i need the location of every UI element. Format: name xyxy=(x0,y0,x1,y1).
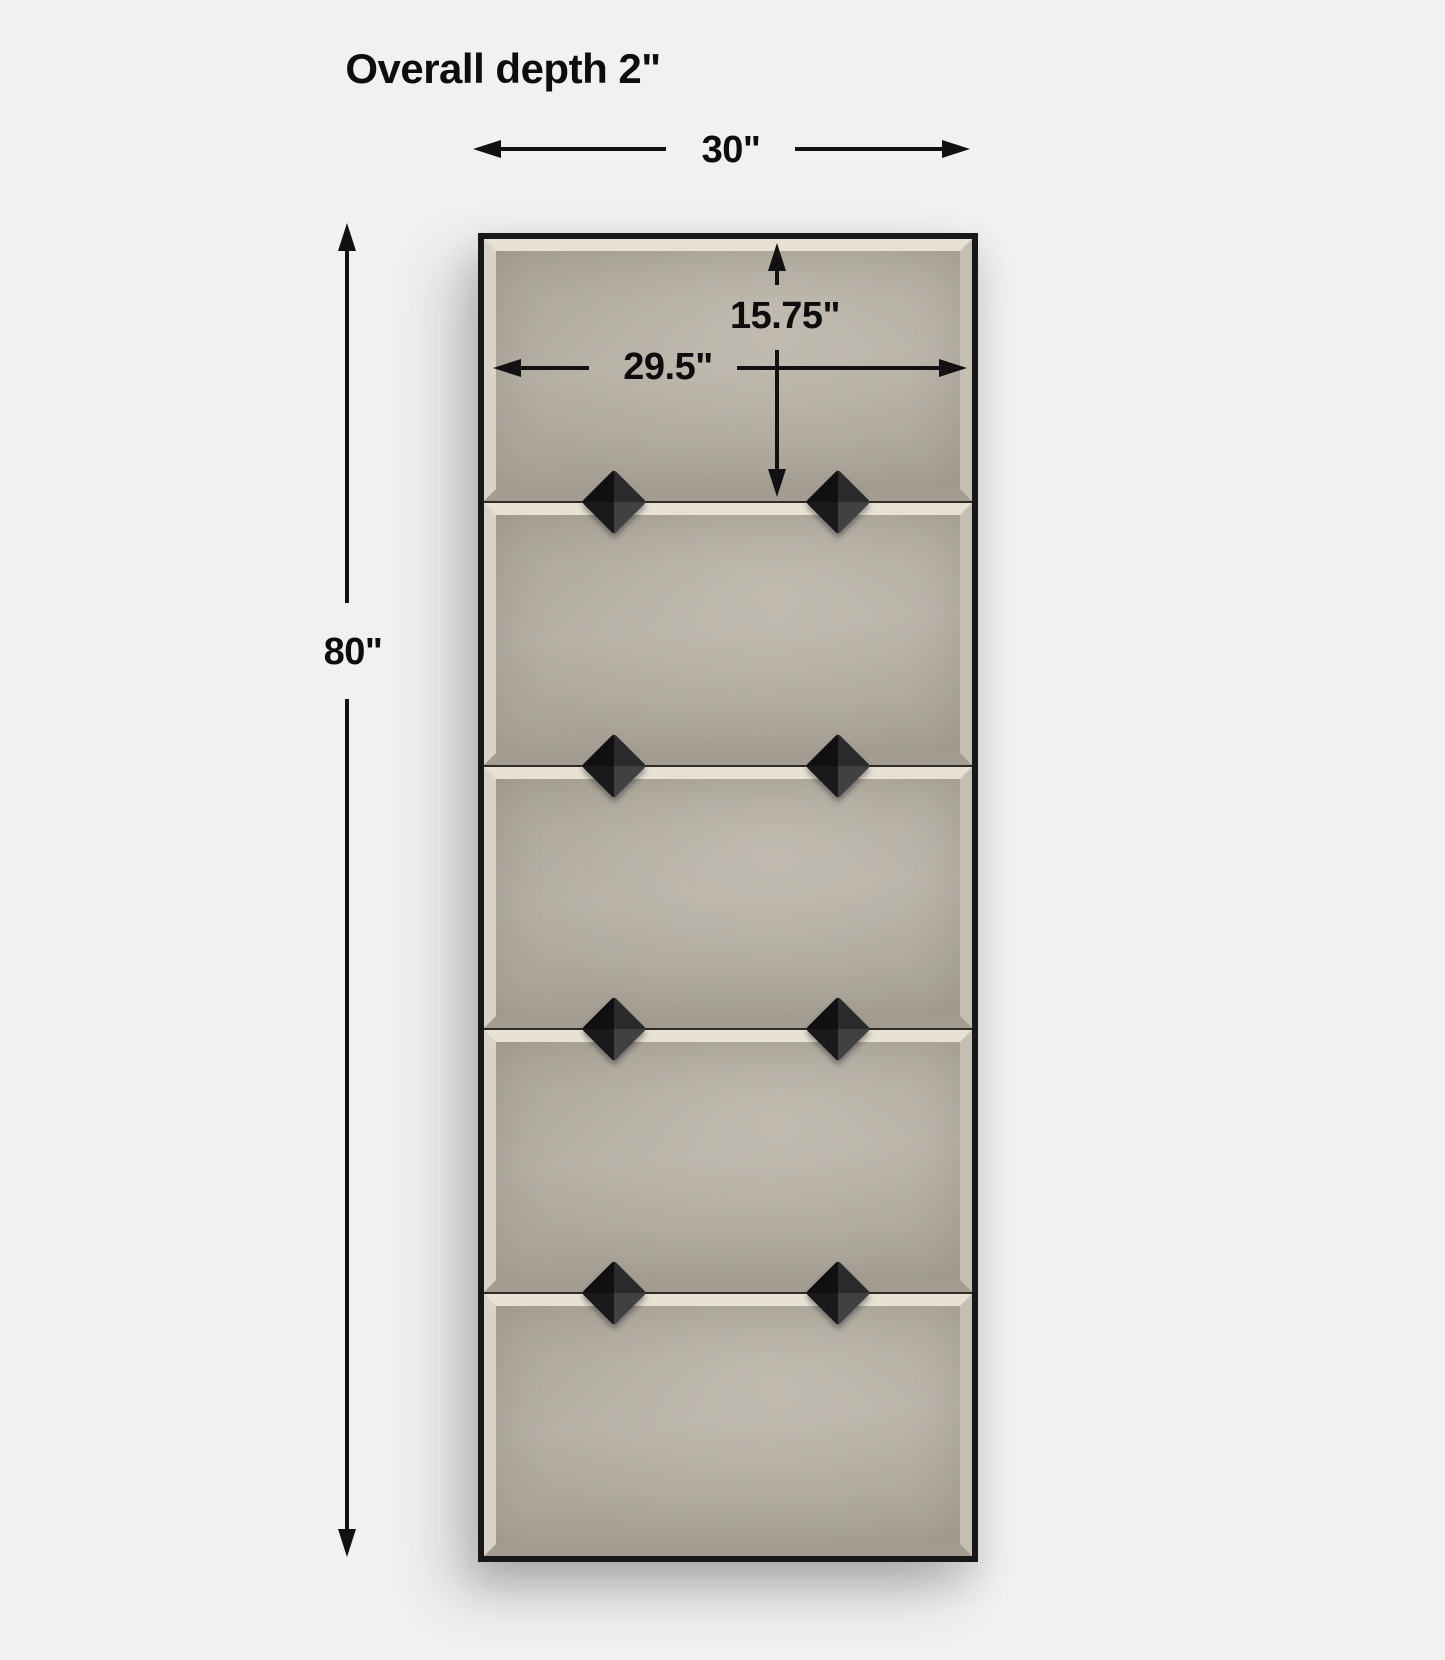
arrowhead-up-icon xyxy=(768,243,786,271)
arrowhead-down-icon xyxy=(338,1529,356,1557)
mirror-panel-2 xyxy=(484,503,972,765)
dimension-line xyxy=(499,147,666,151)
overall-depth-label: Overall depth 2" xyxy=(308,47,698,91)
overall-width-label: 30" xyxy=(671,131,791,169)
arrowhead-right-icon xyxy=(939,359,967,377)
mirror-panel-3 xyxy=(484,767,972,1029)
mirror-frame xyxy=(478,233,978,1562)
glass-width-label: 29.5" xyxy=(598,348,738,386)
arrowhead-down-icon xyxy=(768,469,786,497)
dimension-line xyxy=(345,249,349,603)
dimension-line xyxy=(775,269,779,285)
arrowhead-up-icon xyxy=(338,223,356,251)
arrowhead-right-icon xyxy=(942,140,970,158)
mirror-panel-4 xyxy=(484,1030,972,1292)
overall-height-label: 80" xyxy=(283,633,423,671)
dimension-line xyxy=(795,147,944,151)
product-dimension-diagram: Overall depth 2" 30" 80" xyxy=(0,0,1445,1660)
dimension-line xyxy=(737,366,941,370)
arrowhead-left-icon xyxy=(473,140,501,158)
mirror-panel-5 xyxy=(484,1294,972,1556)
arrowhead-left-icon xyxy=(493,359,521,377)
mirror-glass xyxy=(484,239,972,1556)
dimension-line xyxy=(345,699,349,1531)
panel-height-label: 15.75" xyxy=(685,297,885,335)
dimension-line xyxy=(519,366,589,370)
